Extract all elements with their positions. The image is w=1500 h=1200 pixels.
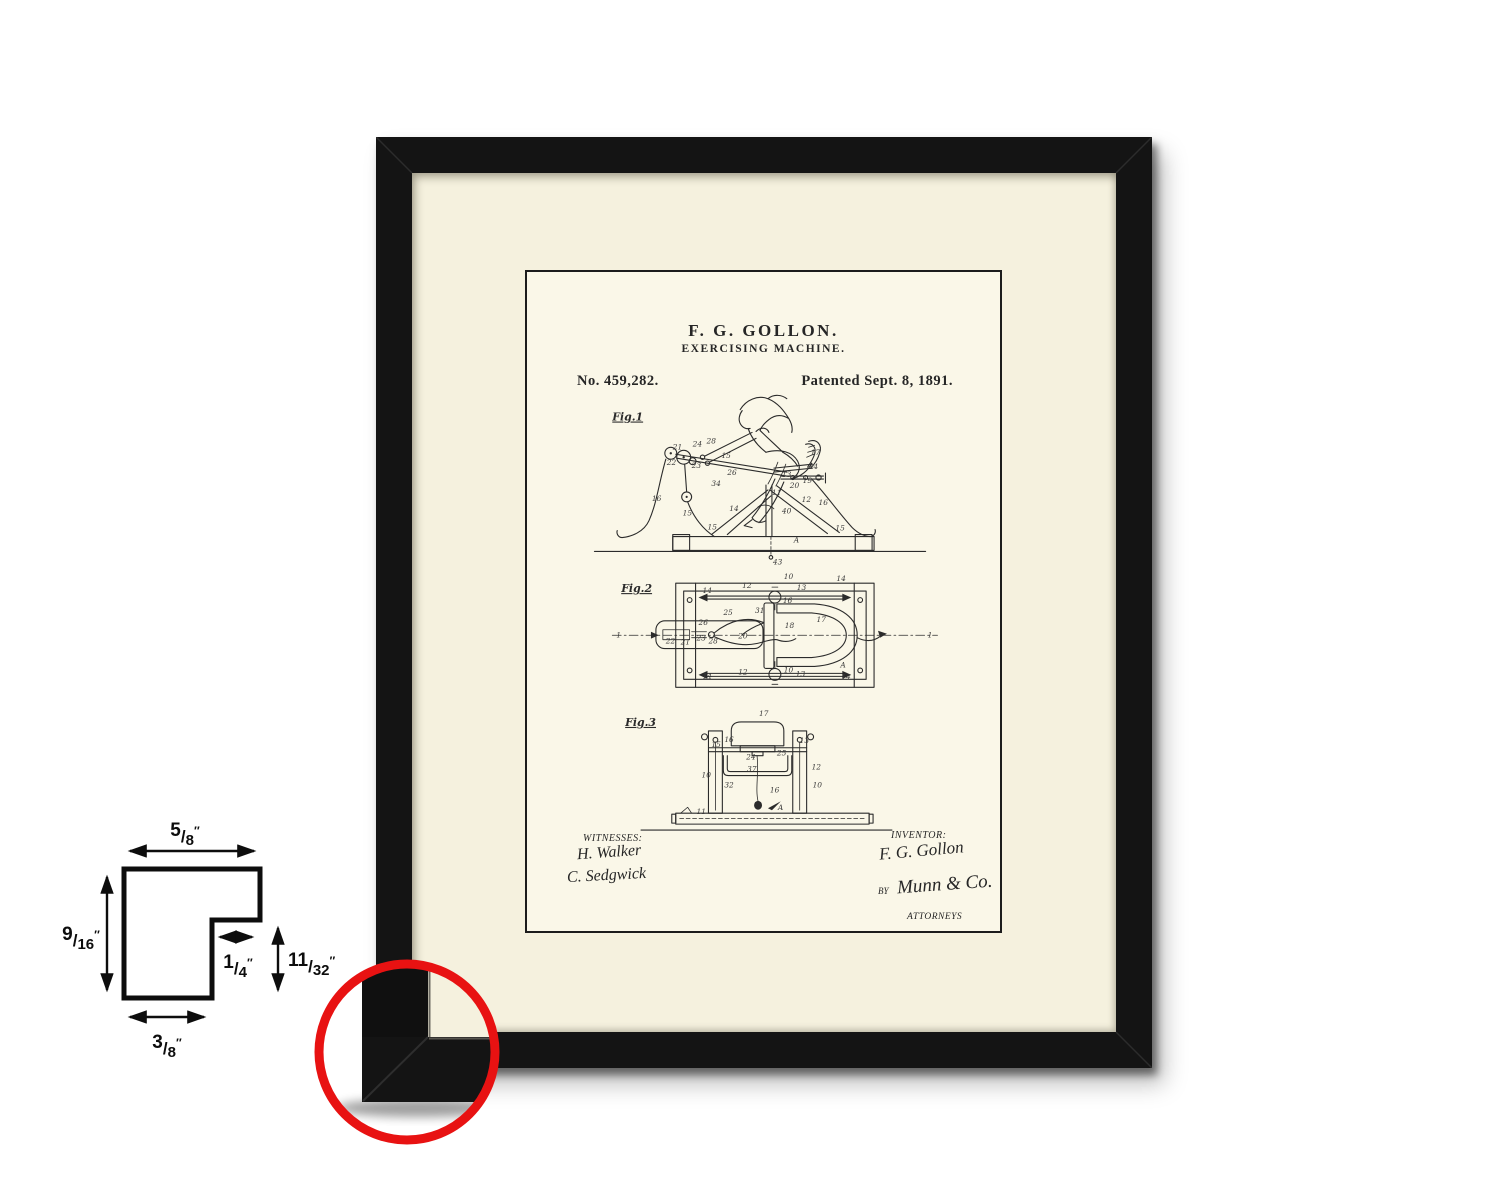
reference-numeral: 26 (726, 468, 737, 477)
reference-numeral: 24 (745, 753, 756, 762)
dim-bottom-width: 3/8″ (152, 1032, 182, 1061)
figure-3-end-view: Fig.3 (624, 716, 892, 830)
reference-numeral: 23 (691, 461, 702, 470)
figure-2-plan-view: Fig.2 (612, 582, 937, 687)
reference-numeral: 23 (696, 634, 707, 643)
magnified-mat (428, 940, 525, 1037)
reference-numeral: 28 (707, 637, 718, 646)
reference-numeral: 17 (817, 615, 827, 624)
reference-numeral: 16 (652, 494, 662, 503)
reference-numeral: 17 (759, 709, 769, 718)
figure-2-label: Fig.2 (620, 582, 652, 595)
reference-numeral: 11 (697, 807, 706, 816)
reference-numeral: 25 (776, 749, 787, 758)
reference-numeral: 16 (819, 498, 829, 507)
figure-3-label: Fig.3 (624, 716, 656, 729)
reference-numeral: 25 (722, 608, 733, 617)
figure-1-side-view: Fig.1 (594, 395, 925, 559)
reference-numeral: 1 (928, 631, 933, 640)
reference-numeral: 40 (781, 507, 792, 516)
reference-numeral: 16 (783, 596, 793, 605)
reference-numeral: 14 (703, 671, 713, 680)
product-photo: F. G. GOLLON. EXERCISING MACHINE. No. 45… (0, 0, 1500, 1200)
dim-left-height: 9/16″ (62, 924, 100, 953)
reference-numeral: 10 (784, 572, 794, 581)
attorneys-label: ATTORNEYS (907, 912, 962, 922)
reference-numeral: 15 (721, 451, 731, 460)
mat-board: F. G. GOLLON. EXERCISING MACHINE. No. 45… (412, 173, 1116, 1032)
reference-numeral: 10 (784, 665, 794, 674)
reference-numeral: 22 (665, 637, 676, 646)
reference-numeral: 37 (747, 765, 757, 774)
patent-print: F. G. GOLLON. EXERCISING MACHINE. No. 45… (525, 270, 1002, 933)
reference-numeral: 13 (800, 736, 810, 745)
reference-numeral: 15 (683, 509, 693, 518)
reference-numeral: A (793, 535, 799, 544)
reference-numeral: 13 (782, 470, 792, 479)
reference-numeral: 14 (841, 672, 851, 681)
reference-numeral: 11 (772, 488, 781, 497)
reference-numeral: 18 (785, 621, 795, 630)
reference-numeral: 15 (835, 524, 845, 533)
reference-numeral: 15 (707, 523, 717, 532)
reference-numeral: A (777, 803, 783, 812)
reference-numeral: 21 (672, 442, 682, 451)
reference-numeral: 12 (802, 495, 812, 504)
dim-top-width: 5/8″ (170, 820, 200, 849)
reference-numeral: 15 (711, 740, 721, 749)
reference-numeral: 13 (797, 583, 807, 592)
reference-numeral: 20 (789, 481, 800, 490)
reference-numeral: 10 (813, 780, 823, 789)
corner-detail-inset (300, 940, 525, 1170)
reference-numeral: 43 (772, 557, 783, 566)
by-label: BY (878, 886, 889, 896)
reference-numeral: 19 (803, 476, 813, 485)
reference-numeral: 16 (724, 735, 734, 744)
reference-numeral: 14 (703, 586, 713, 595)
reference-numeral: 12 (812, 763, 822, 772)
reference-numeral: 32 (724, 780, 734, 789)
reference-numeral: 16 (770, 785, 780, 794)
reference-numeral: 34 (711, 479, 721, 488)
reference-numeral: 14 (729, 504, 739, 513)
reference-numeral: 17 (811, 448, 821, 457)
reference-numeral: 31 (755, 606, 764, 615)
magnified-frame-bottom-bar (362, 1037, 525, 1102)
reference-numeral: 22 (666, 458, 677, 467)
dim-rabbet-width: 1/4″ (223, 952, 253, 981)
reference-numeral: 12 (738, 667, 748, 676)
reference-numeral: 14 (836, 574, 846, 583)
picture-frame: F. G. GOLLON. EXERCISING MACHINE. No. 45… (376, 137, 1152, 1068)
reference-numeral: 13 (796, 669, 806, 678)
reference-numeral: 28 (705, 436, 716, 445)
reference-numeral: 14 (809, 462, 819, 471)
reference-numeral: 24 (692, 439, 703, 448)
reference-numeral: 21 (680, 638, 690, 647)
reference-numeral: 26 (698, 618, 709, 627)
reference-numeral: 1 (616, 631, 621, 640)
reference-numeral: 12 (742, 581, 752, 590)
reference-numeral: 20 (737, 632, 748, 641)
reference-numeral: 10 (702, 771, 712, 780)
figure-1-label: Fig.1 (611, 411, 643, 424)
reference-numeral: A (839, 660, 845, 669)
